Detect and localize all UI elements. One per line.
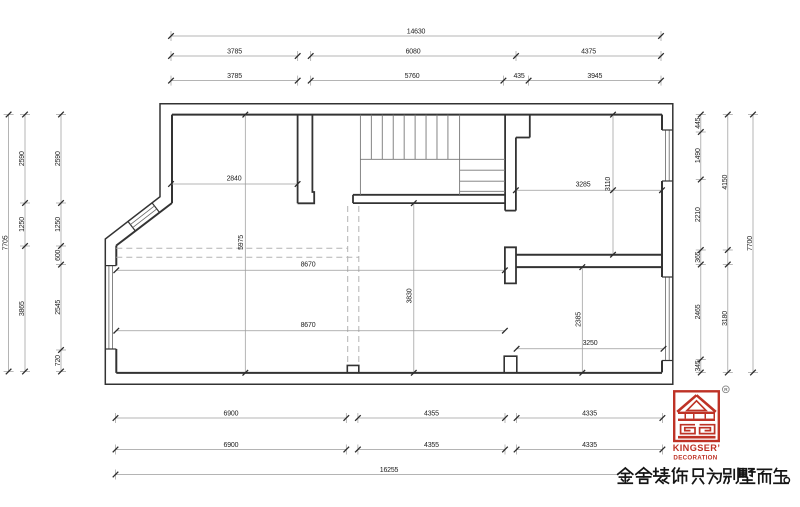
svg-text:8670: 8670 <box>301 322 316 329</box>
svg-text:365: 365 <box>695 251 702 262</box>
svg-text:DECORATION: DECORATION <box>673 454 717 461</box>
svg-text:4335: 4335 <box>582 411 597 418</box>
svg-text:7700: 7700 <box>747 236 754 251</box>
svg-text:1250: 1250 <box>55 217 62 232</box>
svg-text:3285: 3285 <box>576 182 591 189</box>
svg-text:3180: 3180 <box>722 311 729 326</box>
svg-text:4375: 4375 <box>581 49 596 56</box>
svg-text:14630: 14630 <box>407 29 426 36</box>
svg-text:435: 435 <box>513 73 524 80</box>
svg-text:3110: 3110 <box>605 177 612 192</box>
svg-text:2590: 2590 <box>55 151 62 166</box>
svg-text:4150: 4150 <box>722 175 729 190</box>
svg-text:3830: 3830 <box>406 288 413 303</box>
svg-text:16255: 16255 <box>380 467 399 474</box>
svg-text:3250: 3250 <box>583 340 598 347</box>
svg-text:3865: 3865 <box>19 301 26 316</box>
svg-text:2210: 2210 <box>695 207 702 222</box>
svg-text:3945: 3945 <box>587 73 602 80</box>
svg-text:2465: 2465 <box>695 304 702 319</box>
svg-text:1250: 1250 <box>19 217 26 232</box>
svg-text:6080: 6080 <box>406 49 421 56</box>
svg-text:4355: 4355 <box>424 411 439 418</box>
svg-text:3785: 3785 <box>227 73 242 80</box>
svg-text:2385: 2385 <box>575 312 582 327</box>
svg-text:4335: 4335 <box>582 442 597 449</box>
svg-text:6900: 6900 <box>224 411 239 418</box>
svg-text:2840: 2840 <box>227 175 242 182</box>
svg-text:3785: 3785 <box>227 49 242 56</box>
svg-text:2590: 2590 <box>19 151 26 166</box>
svg-text:KINGSER’: KINGSER’ <box>673 443 721 453</box>
svg-text:R: R <box>724 387 728 393</box>
svg-text:345: 345 <box>695 360 702 371</box>
svg-text:600: 600 <box>55 249 62 260</box>
svg-text:1490: 1490 <box>695 148 702 163</box>
svg-text:5760: 5760 <box>405 73 420 80</box>
svg-text:5975: 5975 <box>238 235 245 250</box>
svg-text:2545: 2545 <box>55 300 62 315</box>
svg-text:720: 720 <box>55 355 62 366</box>
svg-text:445: 445 <box>695 117 702 128</box>
svg-text:6900: 6900 <box>224 442 239 449</box>
svg-text:7705: 7705 <box>3 235 10 250</box>
svg-text:4355: 4355 <box>424 442 439 449</box>
svg-text:8670: 8670 <box>301 262 316 269</box>
